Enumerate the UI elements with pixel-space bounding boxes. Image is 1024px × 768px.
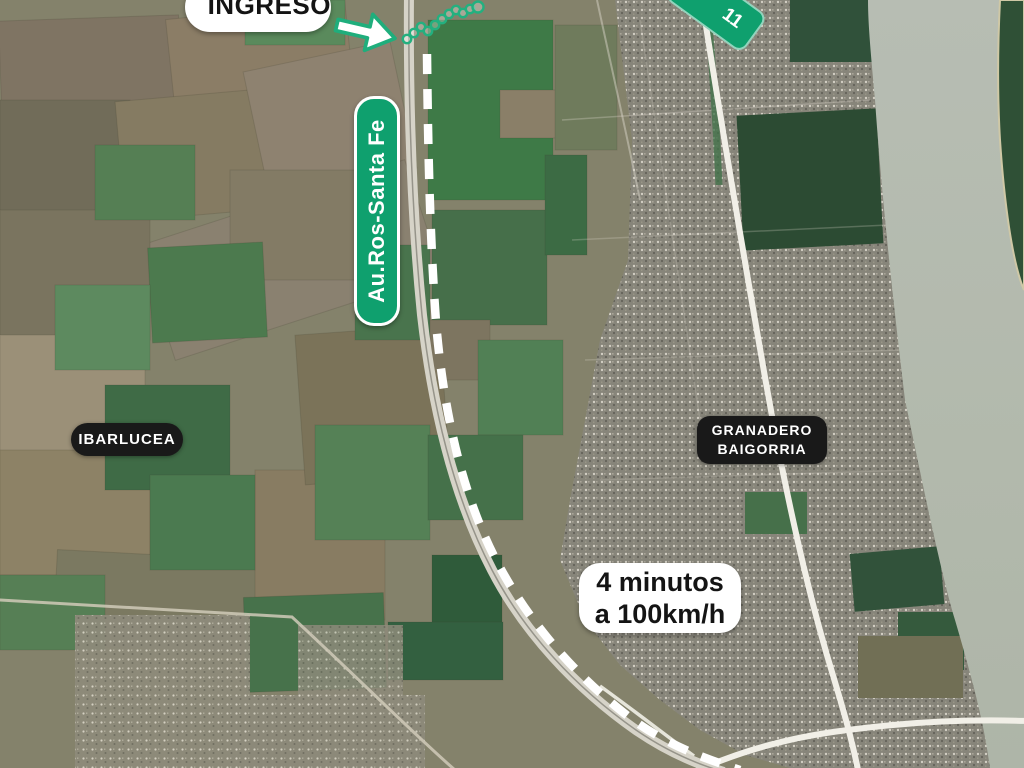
town-label-ibarlucea: IBARLUCEA xyxy=(71,423,183,456)
highway-name-text: Au.Ros-Santa Fe xyxy=(364,119,390,303)
ibarlucea-text: IBARLUCEA xyxy=(78,431,175,448)
map-graphics xyxy=(0,0,1024,768)
highway-name-badge: Au.Ros-Santa Fe xyxy=(354,96,400,326)
granadero-line1: GRANADERO xyxy=(712,421,813,440)
granadero-line2: BAIGORRIA xyxy=(717,440,806,459)
satellite-map: INGRESO 11 Au.Ros-Santa Fe IBARLUCEA GRA… xyxy=(0,0,1024,768)
travel-time-line2: a 100km/h xyxy=(595,598,726,630)
ingreso-label: INGRESO xyxy=(185,0,331,32)
route-shield-number: 11 xyxy=(718,4,747,34)
travel-time-badge: 4 minutos a 100km/h xyxy=(579,563,741,633)
ingreso-text: INGRESO xyxy=(208,0,331,21)
travel-time-line1: 4 minutos xyxy=(596,566,724,598)
town-label-granadero-baigorria: GRANADERO BAIGORRIA xyxy=(697,416,827,464)
